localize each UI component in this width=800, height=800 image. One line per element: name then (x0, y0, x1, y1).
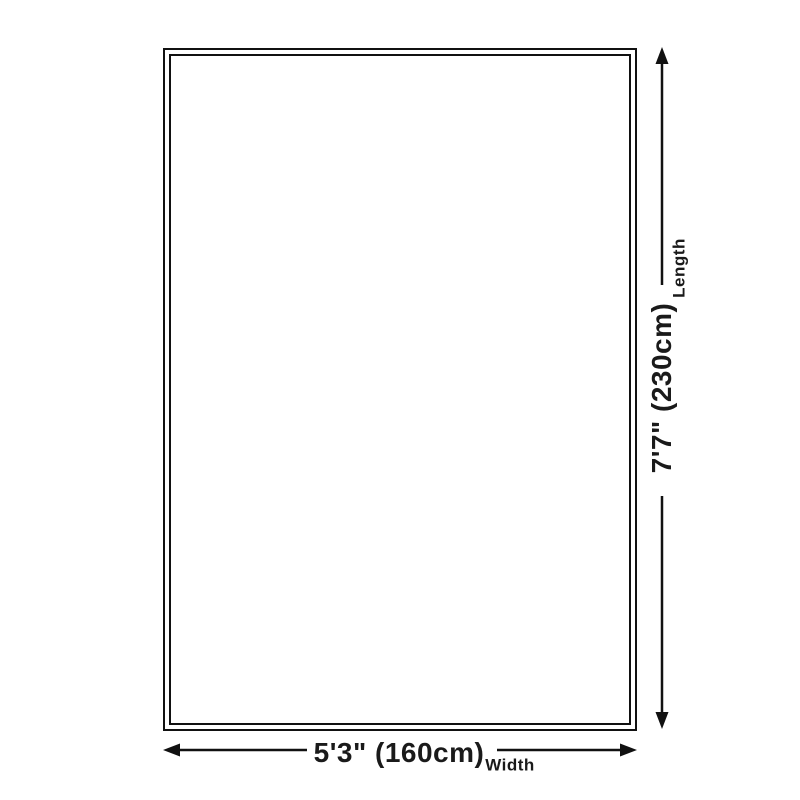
width-axis-label: Width (485, 757, 535, 774)
rug-dimension-diagram: 7'7" (230cm) Length 5'3" (160cm) Width (0, 0, 800, 800)
dimension-arrows (0, 0, 800, 800)
length-axis-label: Length (671, 238, 688, 298)
length-value-label: 7'7" (230cm) (648, 303, 676, 474)
width-value-label: 5'3" (160cm) (314, 739, 485, 767)
